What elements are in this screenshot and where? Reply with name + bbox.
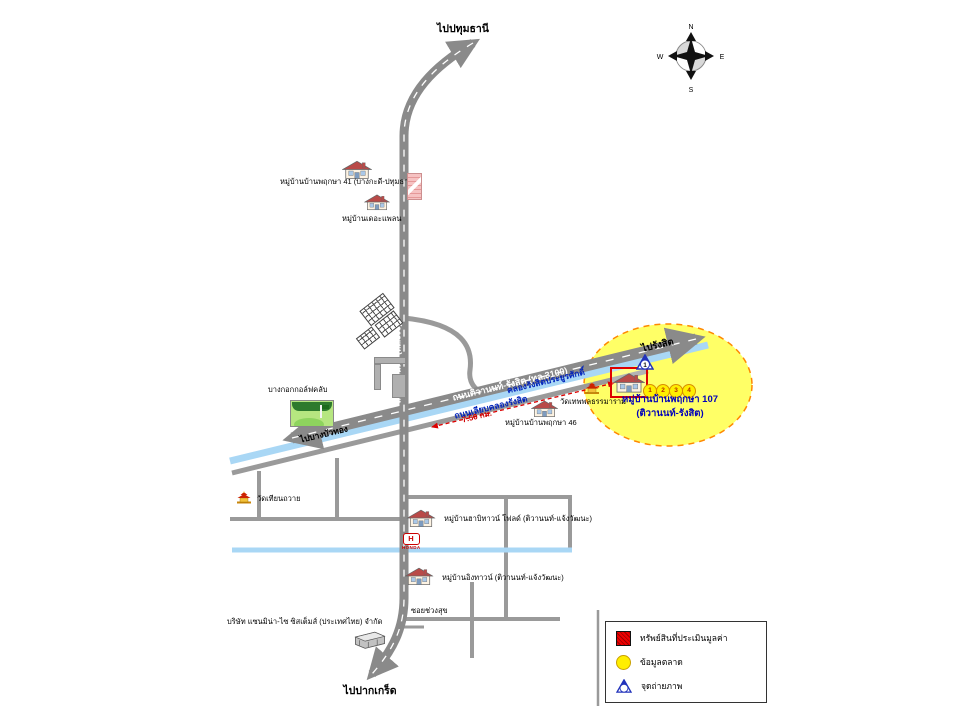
- soi-label: ซอยช่วงสุข: [411, 607, 448, 616]
- building-block: [392, 374, 406, 398]
- factory-icon: [353, 629, 387, 650]
- compass-e: E: [720, 54, 725, 61]
- compass-s: S: [689, 87, 694, 94]
- legend: ทรัพย์สินที่ประเมินมูลค่า ข้อมูลตลาด จุด…: [605, 621, 767, 703]
- wat-thianthawai-label: วัดเทียนถวาย: [257, 495, 300, 504]
- honda-wordmark: HONDA: [402, 545, 420, 550]
- compass-w: W: [657, 54, 664, 61]
- sanmina-label: บริษัท แซนมิน่า-ไซ ซิสเต็มส์ (ประเทศไทย)…: [227, 618, 383, 627]
- apartment-building-icon: [407, 173, 422, 200]
- theplan-label: หมู่บ้านเดอะแพลน: [342, 215, 401, 224]
- photo-point-legend-icon: [616, 679, 632, 693]
- map-drawing-layer: N S E W: [0, 0, 960, 720]
- legend-row-appraised: ทรัพย์สินที่ประเมินมูลค่า: [616, 631, 766, 646]
- compass-n: N: [688, 24, 693, 31]
- subject-subname-label: (ติวานนท์-รังสิต): [616, 409, 724, 420]
- house-icon: [364, 193, 390, 211]
- legend-appraised-label: ทรัพย์สินที่ประเมินมูลค่า: [640, 631, 727, 645]
- ingtown-label: หมู่บ้านอิงทาวน์ (ติวานนท์-แจ้งวัฒนะ): [442, 574, 564, 583]
- house-icon: [531, 399, 558, 418]
- compass-rose: N S E W: [657, 24, 725, 94]
- building-block: [374, 357, 406, 364]
- honda-logo: H HONDA: [402, 533, 420, 550]
- habitown-label: หมู่บ้านฮาบิทาวน์ โฟลด์ (ติวานนท์-แจ้งวั…: [444, 515, 592, 524]
- building-block: [374, 364, 381, 390]
- house-icon: [613, 370, 645, 395]
- direction-north-label: ไปปทุมธานี: [413, 23, 513, 35]
- temple-icon: [583, 381, 601, 396]
- map-canvas: N S E W ไปปทุมธานี ไปปากเกร็ด ไปรังสิต ไ…: [0, 0, 960, 720]
- legend-row-photo: จุดถ่ายภาพ: [616, 679, 766, 693]
- house-icon: [404, 566, 434, 586]
- market-data-legend-icon: [616, 655, 631, 670]
- golf-green: [294, 418, 324, 427]
- pruksa41-label: หมู่บ้านบ้านพฤกษา 41 (บางกะดี-ปทุมธานี): [280, 178, 416, 187]
- temple-icon: [235, 491, 253, 505]
- photo-point-marker: 1: [636, 354, 654, 370]
- pruksa46-label: หมู่บ้านบ้านพฤกษา 46: [505, 419, 577, 428]
- photo-point-number: 1: [643, 362, 647, 369]
- appraised-property-legend-icon: [616, 631, 631, 646]
- legend-photo-label: จุดถ่ายภาพ: [641, 679, 682, 693]
- golf-flag: [322, 405, 329, 409]
- legend-market-label: ข้อมูลตลาด: [640, 655, 683, 669]
- direction-south-label: ไปปากเกร็ด: [320, 685, 420, 697]
- legend-row-market: ข้อมูลตลาด: [616, 655, 766, 670]
- house-icon: [406, 508, 436, 528]
- subject-name-label: หมู่บ้านบ้านพฤกษา 107: [616, 395, 724, 406]
- honda-h-mark: H: [403, 533, 420, 545]
- golf-club-label: บางกอกกอล์ฟคลับ: [268, 386, 328, 395]
- golf-course-image: [290, 400, 334, 427]
